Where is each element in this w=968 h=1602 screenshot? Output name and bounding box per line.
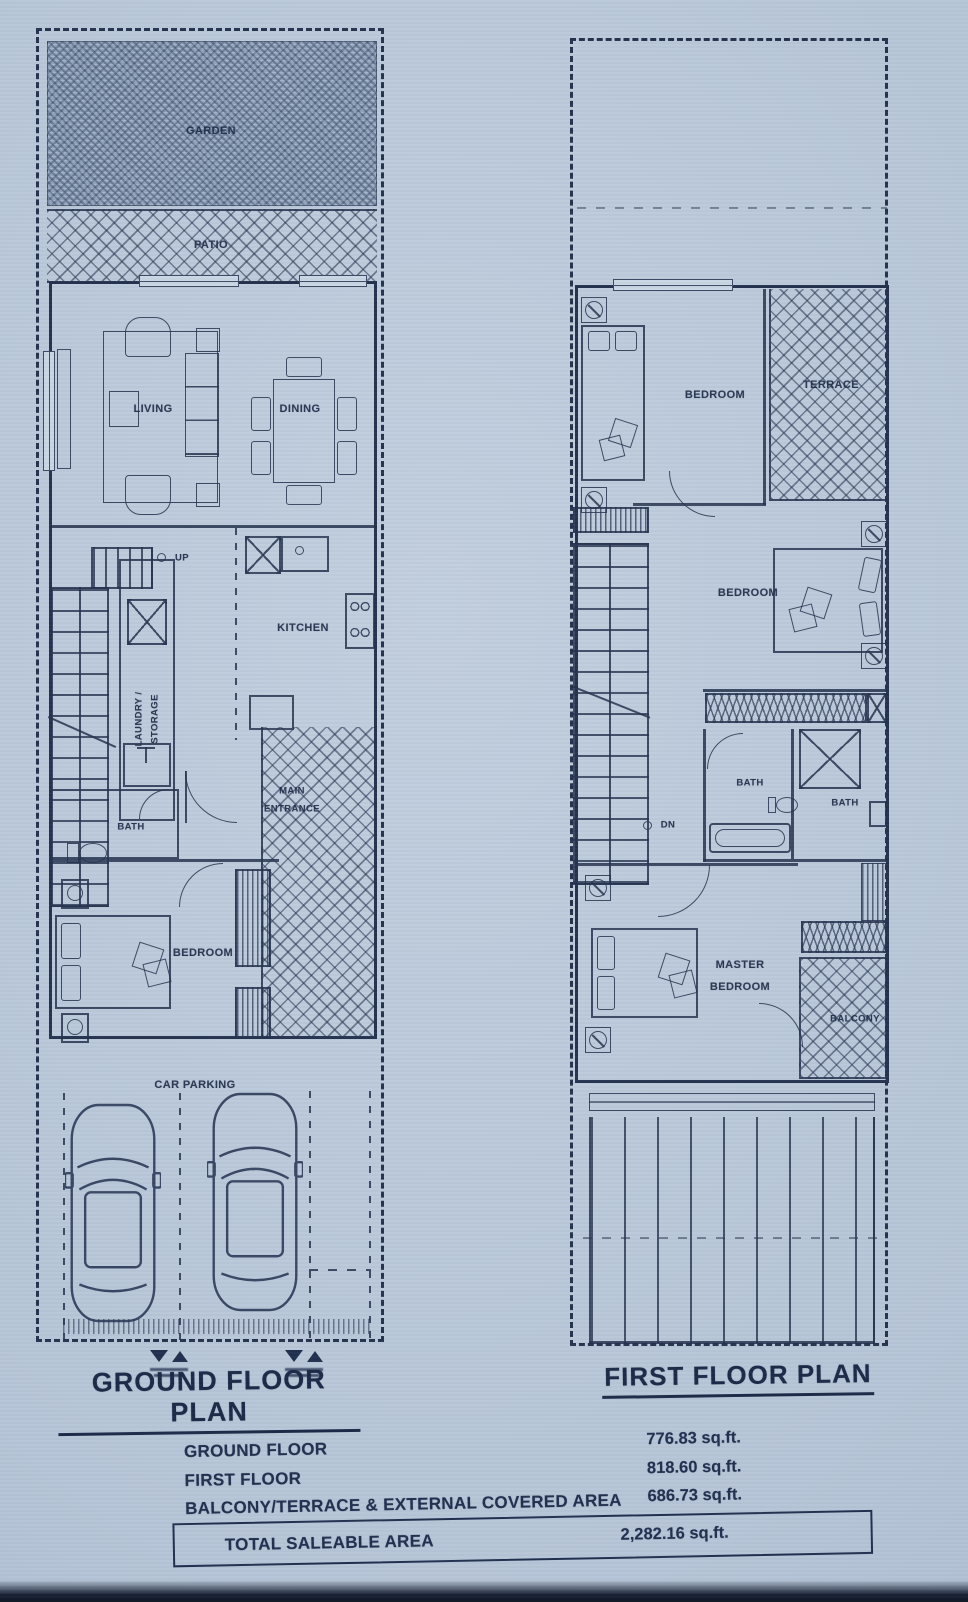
- photo-edge-shadow: [0, 1580, 968, 1602]
- summary-row-value: 686.73 sq.ft.: [552, 1485, 742, 1508]
- area-summary: GROUND FLOOR 776.83 sq.ft. FIRST FLOOR 8…: [0, 0, 968, 1602]
- summary-row-label: FIRST FLOOR: [184, 1469, 301, 1491]
- summary-row-value: 818.60 sq.ft.: [551, 1457, 741, 1480]
- floorplan-photo: GARDEN PATIO LIVING DINING: [0, 0, 968, 1602]
- summary-row-label: GROUND FLOOR: [184, 1439, 328, 1462]
- total-area-label: TOTAL SALEABLE AREA: [225, 1531, 434, 1555]
- total-area-value: 2,282.16 sq.ft.: [545, 1522, 805, 1546]
- total-area-box: TOTAL SALEABLE AREA 2,282.16 sq.ft.: [172, 1510, 873, 1567]
- summary-row-value: 776.83 sq.ft.: [551, 1428, 741, 1451]
